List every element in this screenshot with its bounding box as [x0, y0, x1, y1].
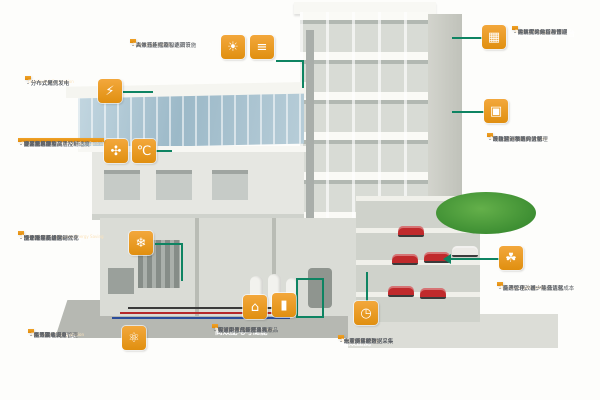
icon-glyph: ✣	[111, 145, 122, 158]
car	[392, 254, 418, 265]
connector-line	[302, 60, 304, 88]
connector-line	[452, 111, 484, 113]
label-item: 实时高效的能源转换	[214, 327, 267, 336]
sun-light-icon: ☀	[221, 35, 245, 59]
icon-glyph: ℃	[137, 145, 152, 158]
connector-line	[452, 37, 482, 39]
building-grid-icon: ▣	[484, 99, 508, 123]
thermometer-icon: ℃	[132, 139, 156, 163]
connector-line	[181, 243, 183, 281]
label-item: 分项能耗统计	[340, 338, 377, 346]
ahu-unit	[104, 170, 140, 200]
icon-glyph: ⚛	[128, 332, 140, 345]
label-item: 人体感应控制	[132, 42, 169, 51]
icon-glyph: ◷	[360, 307, 371, 320]
connector-line	[366, 272, 368, 302]
snowflake-icon: ❄	[129, 231, 153, 255]
label-item: 分布式风力发电	[27, 79, 69, 90]
meter-icon: ◷	[354, 301, 378, 325]
car	[420, 288, 446, 299]
icon-glyph: ⌂	[251, 301, 259, 314]
connector-line	[156, 150, 172, 152]
smart-building-diagram: ⚡ ✣ ℃ ❄ ⚛ ☀ ≡ ⌂ ▮ ◷ ▦ ▣ ☘ 分布式发电 Distribu…	[0, 0, 600, 400]
dashboard-icon: ▦	[482, 25, 506, 49]
connector-line	[155, 243, 183, 245]
battery-icon: ▮	[272, 293, 296, 317]
room-wall	[195, 218, 199, 316]
icon-glyph: ☘	[505, 252, 517, 265]
connector-line	[123, 91, 153, 93]
car	[388, 286, 414, 297]
icon-glyph: ▦	[488, 31, 500, 44]
car	[452, 246, 478, 257]
icon-glyph: ⚡	[105, 85, 114, 98]
chiller-unit	[108, 268, 134, 294]
arrowhead	[443, 254, 451, 264]
blinds-icon: ≡	[250, 35, 274, 59]
transformer-icon: ⌂	[243, 295, 267, 319]
car	[398, 226, 424, 237]
generator-icon: ⚡	[98, 79, 122, 103]
icon-glyph: ❄	[136, 237, 147, 250]
label-item: 能源集成调度管理	[30, 332, 78, 341]
label-item: 系统联动策略的优化	[489, 136, 542, 145]
connector-line	[276, 60, 304, 62]
connector-loop	[296, 278, 324, 318]
leaf-icon: ☘	[499, 246, 523, 270]
connector-line	[450, 258, 499, 260]
label-item: 持续优化的运营方案	[514, 29, 567, 38]
ahu-unit	[212, 170, 248, 200]
icon-glyph: ☀	[227, 41, 239, 54]
molecule-icon: ⚛	[122, 326, 146, 350]
label-item: 整个冷热系统联动优化	[20, 234, 79, 245]
fan-icon: ✣	[104, 139, 128, 163]
label-item: 变风量系统	[20, 141, 51, 150]
icon-glyph: ≡	[257, 41, 268, 54]
lawn	[436, 192, 536, 234]
icon-glyph: ▮	[280, 299, 287, 312]
label-item: 资产管理改善，降低运营成本	[499, 285, 574, 294]
ahu-unit	[156, 170, 192, 200]
icon-glyph: ▣	[490, 105, 502, 118]
